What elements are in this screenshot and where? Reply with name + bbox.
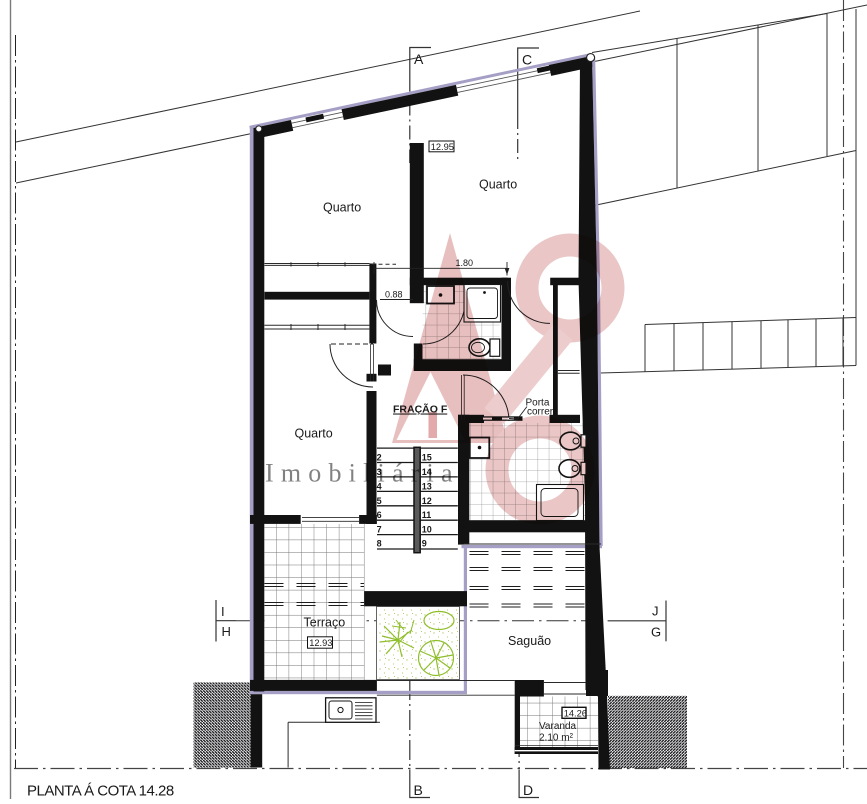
svg-text:5: 5 — [377, 496, 382, 506]
svg-text:I: I — [221, 604, 225, 619]
svg-text:Saguão: Saguão — [508, 634, 551, 648]
svg-text:Quarto: Quarto — [479, 178, 517, 192]
svg-text:Quarto: Quarto — [323, 201, 361, 215]
svg-text:C: C — [522, 52, 532, 68]
svg-text:Terraço: Terraço — [304, 616, 346, 630]
svg-text:A: A — [414, 51, 424, 67]
svg-text:2.10 m²: 2.10 m² — [539, 733, 574, 744]
svg-text:11: 11 — [422, 510, 432, 520]
svg-text:7: 7 — [377, 525, 382, 535]
svg-text:D: D — [523, 782, 533, 798]
svg-text:10: 10 — [422, 525, 432, 535]
svg-text:J: J — [652, 604, 659, 619]
svg-text:H: H — [222, 624, 231, 639]
svg-text:8: 8 — [377, 539, 382, 549]
svg-text:14.26: 14.26 — [564, 708, 587, 718]
svg-text:0.88: 0.88 — [385, 290, 403, 300]
svg-text:Quarto: Quarto — [295, 427, 333, 441]
svg-text:B: B — [414, 782, 423, 798]
svg-text:PLANTA Á COTA 14.28: PLANTA Á COTA 14.28 — [27, 783, 174, 800]
svg-text:9: 9 — [422, 539, 427, 549]
svg-text:12.93: 12.93 — [309, 638, 332, 648]
svg-text:6: 6 — [377, 510, 382, 520]
svg-text:Varanda: Varanda — [539, 721, 577, 732]
svg-text:Imobiliária: Imobiliária — [265, 459, 460, 488]
svg-text:12: 12 — [422, 496, 432, 506]
svg-text:12.95: 12.95 — [431, 142, 454, 152]
svg-text:G: G — [651, 625, 661, 640]
